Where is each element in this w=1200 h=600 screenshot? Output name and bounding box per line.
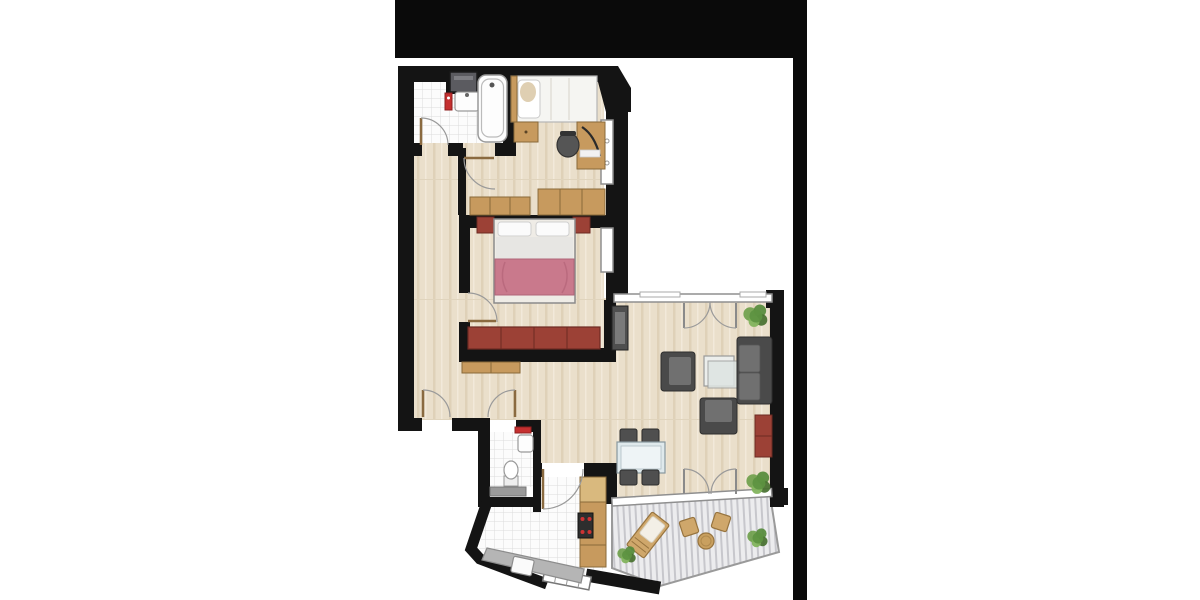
corridor-furniture xyxy=(462,362,520,373)
tv-cabinet-inner xyxy=(615,312,625,344)
wc-gray-mat xyxy=(490,487,526,496)
burner xyxy=(581,530,585,534)
kitchen-upper-cabinet xyxy=(580,477,606,502)
window-sill xyxy=(740,292,766,297)
wall-entry-left xyxy=(398,418,422,431)
double-bed-pillow xyxy=(536,222,569,236)
wardrobe-b xyxy=(538,189,605,215)
window-handle-dot xyxy=(605,139,609,143)
wall-wc-north-left xyxy=(478,420,487,432)
washing-machine-detail xyxy=(454,76,473,80)
wall-bath-south-c xyxy=(495,143,516,156)
right-black-bar xyxy=(793,0,807,600)
wc-sink xyxy=(518,435,533,452)
desk-paper xyxy=(580,150,600,157)
wardrobe-a xyxy=(470,197,530,215)
right-black-bar-rect xyxy=(793,0,807,600)
plant-leaves xyxy=(753,533,764,544)
bathtub-faucet xyxy=(490,83,495,88)
wall-west xyxy=(398,66,414,431)
sofa-cushion xyxy=(739,345,760,372)
window-handle-dot xyxy=(605,161,609,165)
window-master-bedroom xyxy=(601,228,613,272)
armchair-cushion xyxy=(669,357,691,385)
burner xyxy=(588,517,592,521)
wc-radiator xyxy=(515,427,531,433)
plant-leaves xyxy=(750,310,763,323)
wall-master-south xyxy=(459,348,607,362)
wall-kitchen-north-left xyxy=(533,463,542,477)
plant-leaves xyxy=(622,550,632,560)
single-bed-headboard xyxy=(511,76,517,122)
burner xyxy=(588,530,592,534)
office-chair xyxy=(557,133,579,157)
nightstand-left xyxy=(477,217,494,233)
burner xyxy=(581,517,585,521)
wall-wc-west xyxy=(478,425,490,507)
window-sill xyxy=(640,292,680,297)
cabinet-knob xyxy=(525,131,528,134)
kitchen-sink xyxy=(511,556,535,576)
dining-table-glass xyxy=(621,446,661,469)
toilet-bowl xyxy=(504,461,518,479)
loveseat-cushion xyxy=(705,400,732,422)
floor-corridor xyxy=(541,420,604,463)
balcony-table xyxy=(698,533,714,549)
sink-faucet xyxy=(465,93,469,97)
plant-leaves xyxy=(753,477,766,490)
rect xyxy=(511,556,535,576)
sofa-cushion xyxy=(739,373,760,400)
floorplan-svg xyxy=(0,0,1200,600)
floorplan-screenshot xyxy=(0,0,1200,600)
top-black-bar xyxy=(395,0,807,58)
radiator-dot xyxy=(447,97,450,100)
top-black-bar-rect xyxy=(395,0,807,58)
bathroom-radiator xyxy=(445,93,452,110)
wall-master-west-upper xyxy=(459,228,470,293)
dining-chair xyxy=(620,470,637,485)
dining-chair xyxy=(642,470,659,485)
coffee-table-glass xyxy=(708,361,737,388)
washing-machine xyxy=(450,72,477,92)
stove xyxy=(578,513,593,538)
single-bed-pillow-shade xyxy=(520,82,536,102)
double-bed-sheet xyxy=(496,237,573,261)
desk xyxy=(577,122,605,169)
office-chair-back xyxy=(560,131,576,136)
double-bed-pink-blanket xyxy=(495,259,574,295)
double-bed-pillow xyxy=(498,222,531,236)
